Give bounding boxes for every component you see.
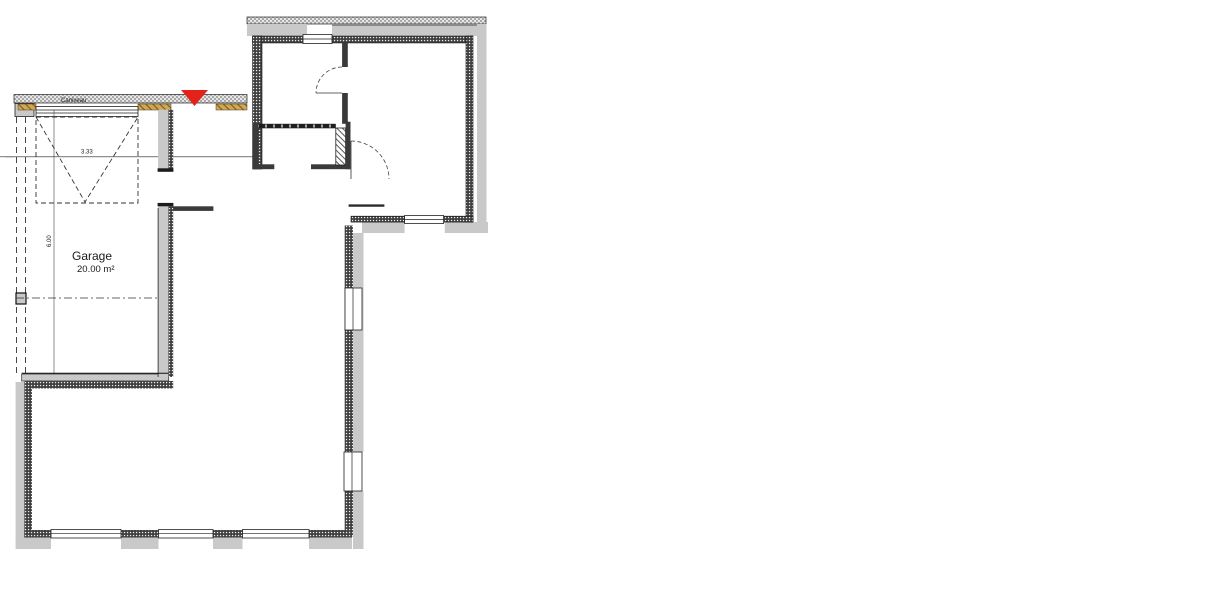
- svg-text:6.00: 6.00: [47, 235, 53, 247]
- svg-text:Garage: Garage: [72, 249, 112, 263]
- svg-text:20.00 m²: 20.00 m²: [77, 264, 115, 275]
- svg-text:Caniveau: Caniveau: [61, 98, 86, 104]
- svg-text:3.33: 3.33: [81, 150, 93, 156]
